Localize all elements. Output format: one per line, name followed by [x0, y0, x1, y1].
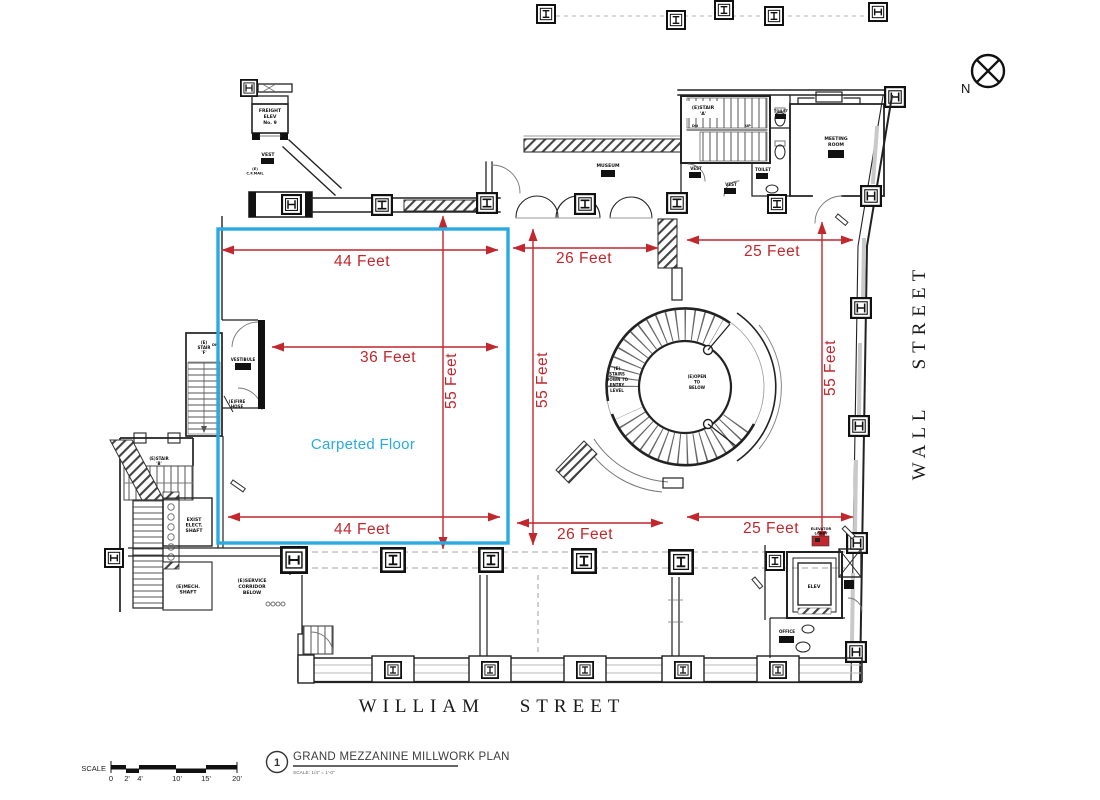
dimension-label: 26 Feet — [556, 250, 612, 267]
scale-bar-label: SCALE — [81, 764, 106, 773]
detail-number: 1 — [274, 757, 280, 769]
drawing-title: GRAND MEZZANINE MILLWORK PLAN — [293, 751, 510, 763]
dimension-label: 44 Feet — [334, 521, 390, 538]
scale-tick: 2' — [124, 774, 130, 783]
scale-tick: 15' — [201, 774, 211, 783]
room-number-tag — [235, 363, 251, 370]
street-label-william: WILLIAM STREET — [359, 696, 626, 717]
floor-plan-page: FREIGHTELEVNo. 9 VEST (E)C.F.MAIL (E)STA… — [0, 0, 1100, 800]
room-number-tag — [775, 114, 786, 119]
scale-tick: 20' — [232, 774, 242, 783]
label-toilet-2: TOILET — [755, 167, 771, 172]
scale-tick: 0 — [109, 774, 113, 783]
room-number-tag — [779, 636, 794, 643]
room-number-tag-highlighted — [812, 536, 829, 546]
label-vest-1: VEST — [690, 166, 702, 171]
street-label-wall: WALL STREET — [909, 264, 930, 480]
room-number-tag — [261, 158, 274, 164]
dimension-label: 55 Feet — [443, 353, 460, 409]
drawing-scale-note: SCALE: 1/4" = 1'-0" — [293, 770, 335, 776]
north-label: N — [961, 81, 970, 96]
dimension-label: 55 Feet — [534, 352, 551, 408]
scale-tick: 4' — [137, 774, 143, 783]
carpeted-floor-label: Carpeted Floor — [311, 436, 415, 453]
dimension-label: 25 Feet — [743, 520, 799, 537]
column-symbol — [241, 80, 257, 96]
floor-plan-canvas: FREIGHTELEVNo. 9 VEST (E)C.F.MAIL (E)STA… — [0, 0, 1100, 800]
room-number-tag — [724, 188, 736, 194]
label-vest-2: VEST — [725, 182, 737, 187]
label-stair-a-dn: DN — [692, 124, 698, 128]
elevator-lobby-tag: ELEVATORLOBBY — [811, 527, 832, 546]
room-number-tag — [601, 170, 615, 177]
scale-tick: 10' — [172, 774, 182, 783]
dimension-label: 25 Feet — [744, 243, 800, 260]
room-number-tag-mark — [815, 538, 820, 542]
room-number-tag — [828, 150, 844, 158]
room-number-tag — [756, 173, 768, 179]
label-vestibule: VESTIBULE — [231, 357, 256, 362]
dimension-label: 26 Feet — [557, 526, 613, 543]
label-vest-top: VEST — [261, 152, 275, 158]
dimension-label: 55 Feet — [822, 340, 839, 396]
label-museum: MUSEUM — [596, 163, 619, 169]
dimension-label: 44 Feet — [334, 253, 390, 270]
label-office: OFFICE — [779, 629, 795, 634]
label-exist-elect-shaft: EXISTELECT.SHAFT — [186, 517, 204, 534]
room-number-tag — [689, 172, 701, 178]
dimension-label: 36 Feet — [360, 349, 416, 366]
label-stair-a-up: UP — [745, 124, 751, 128]
label-elev: ELEV — [808, 584, 821, 590]
label-toilet-1: TOILET — [774, 109, 789, 113]
label-fire-hose: (E)FIREHOSE — [229, 399, 246, 409]
